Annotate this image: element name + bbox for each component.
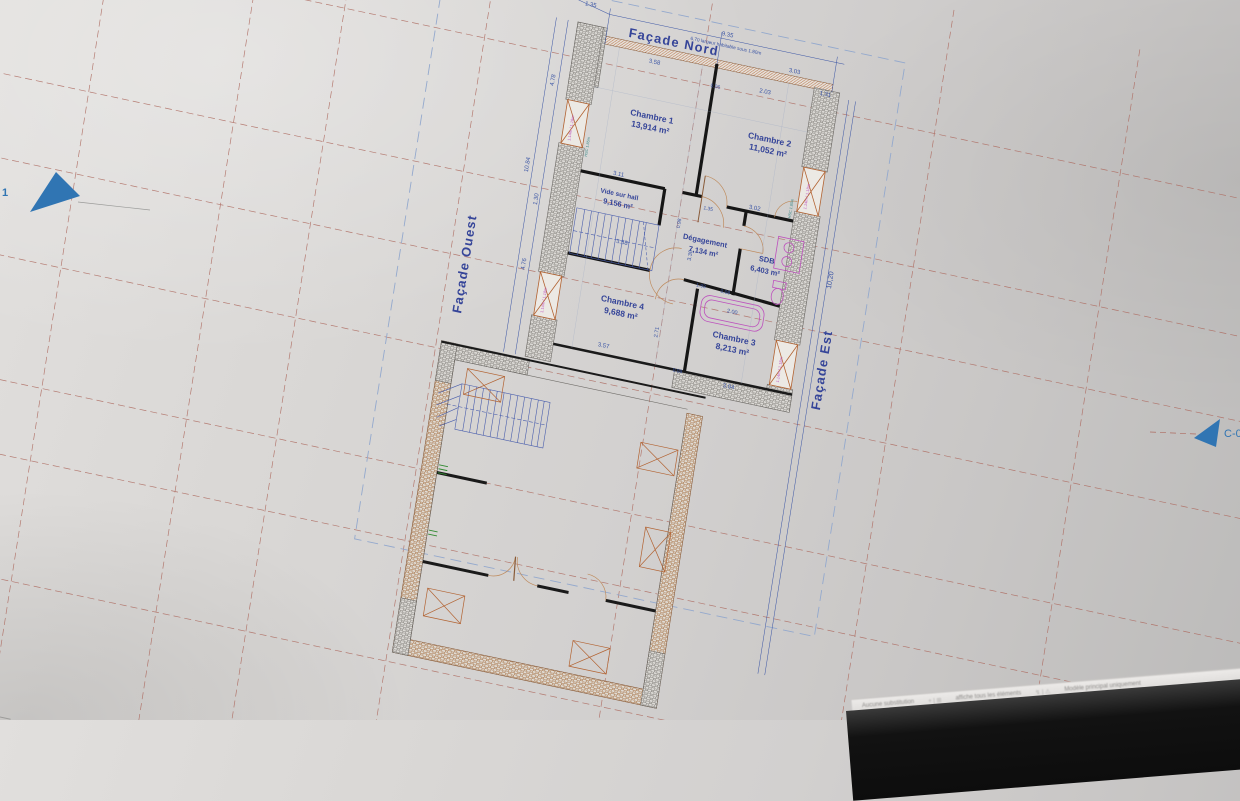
section-marker-right-triangle[interactable] [1194,419,1220,447]
svg-text:2.03: 2.03 [759,88,772,96]
svg-text:2.00: 2.00 [726,308,737,316]
facade-east-label: Façade Est [808,329,835,412]
svg-text:3.58: 3.58 [616,239,629,247]
stair-lower [433,379,550,448]
svg-text:0.08: 0.08 [720,289,731,297]
svg-text:0.98: 0.98 [676,218,683,229]
facade-west-label: Façade Ouest [449,213,479,315]
axis-grid-lines [0,0,1240,720]
section-marker-right-label: C-0 [1224,428,1240,440]
room-area: 6,403 m² [750,263,781,278]
svg-text:3.58: 3.58 [648,59,661,67]
section-marker-left-triangle[interactable] [30,172,80,212]
section-marker-left-label: 1 [2,187,8,199]
svg-text:1.35: 1.35 [703,205,714,213]
window-hsc-label: HSC 1.85m [584,137,591,157]
svg-text:3.57: 3.57 [597,342,610,350]
lower-floor-plan [392,341,705,709]
floor-plan-drawing: 1.14m / 1.18m 1.14m / 1.18m 1.14m / 1.18… [0,0,1240,720]
svg-text:1.30: 1.30 [533,192,541,205]
svg-text:4.76: 4.76 [521,257,529,270]
room-label: SDB [758,254,775,266]
svg-text:10,20: 10,20 [826,271,836,290]
svg-text:4.78: 4.78 [550,73,558,86]
svg-text:3.30: 3.30 [687,250,695,262]
plan-rotated-group: 1.14m / 1.18m 1.14m / 1.18m 1.14m / 1.18… [0,0,1240,720]
lower-windows [420,368,689,683]
svg-text:1.35: 1.35 [585,1,598,9]
svg-text:10.84: 10.84 [524,156,532,173]
